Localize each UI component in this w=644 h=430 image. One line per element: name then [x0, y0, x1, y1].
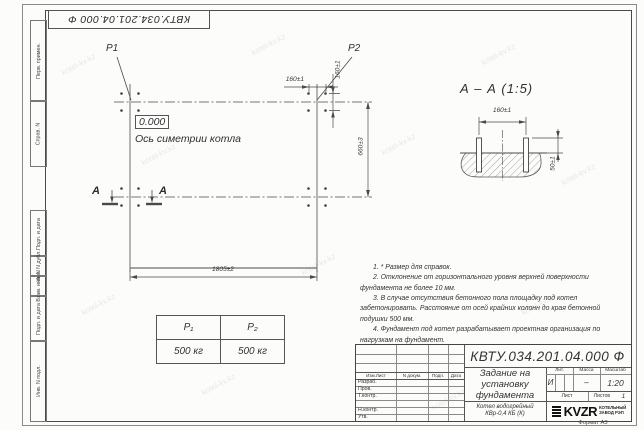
anchor-bolt-right	[524, 138, 529, 172]
notes-block: 1. * Размер для справок. 2. Отклонение о…	[360, 263, 628, 346]
row-prov: Пров.	[356, 386, 398, 393]
dim-protrusion-text: 50±1	[550, 149, 557, 179]
plan-view	[102, 57, 372, 281]
p2-leader-label: P2	[348, 43, 360, 54]
arrowhead	[556, 153, 560, 160]
document-title-line: установку	[481, 379, 528, 390]
section-view-title: А – А (1:5)	[460, 81, 533, 96]
scale-label: Масштаб	[600, 367, 631, 374]
arrowhead	[302, 85, 309, 89]
arrowhead	[519, 120, 526, 124]
note-1: 1. * Размер для справок.	[360, 263, 628, 273]
document-title: Задание на установку фундамента	[464, 367, 546, 401]
rev-header-data: Дата	[448, 372, 464, 379]
kvzr-logo-text: KVZR	[564, 404, 597, 419]
row-t-kontr: Т.контр.	[356, 393, 398, 400]
product-name-line: Котел водогрейный	[476, 404, 533, 412]
p1-leader-label: P1	[106, 43, 118, 54]
kvzr-coil-icon	[551, 405, 562, 418]
dim-sect-spacing-text: 160±1	[477, 107, 527, 114]
load-p1-header: P₁	[157, 316, 221, 340]
anchor-bolt-points	[120, 92, 327, 207]
format-label: Формат А3	[553, 420, 633, 426]
arrowhead	[310, 275, 317, 279]
kvzr-logo-caption: КОТЕЛЬНЫЙ ЗАВОД РЭП	[599, 406, 626, 416]
document-title-line: Задание на	[480, 368, 531, 379]
section-view	[460, 117, 563, 181]
title-block-designation: КВТУ.034.201.04.000 Ф	[464, 345, 631, 367]
arrowhead	[331, 87, 335, 94]
dim-bolt-spacing-h-text: 160±1	[268, 76, 304, 83]
arrowhead	[479, 120, 486, 124]
scale-value: 1:20	[600, 374, 631, 391]
row-razrab: Разраб.	[356, 379, 398, 386]
product-name: Котел водогрейный КВр-0,4 КБ (К)	[464, 401, 546, 421]
title-block: Изм.Лист N докум. Подп. Дата Разраб. Про…	[355, 344, 632, 422]
section-letter-left: А	[92, 185, 100, 197]
section-letter-right: А	[159, 185, 167, 197]
sheet-label: Лист	[546, 391, 588, 401]
row-n-kontr: Н.контр.	[356, 407, 398, 414]
load-p1-value: 500 кг	[157, 340, 221, 364]
sheets-label: Листов	[594, 393, 610, 399]
symmetry-axis-label: Ось симетрии котла	[135, 133, 241, 145]
load-p2-value: 500 кг	[221, 340, 285, 364]
arrowhead	[556, 131, 560, 138]
dim-width-text: 1805±2	[192, 266, 254, 273]
product-name-line: КВр-0,4 КБ (К)	[485, 411, 525, 419]
dim-height-text: 660±3	[358, 130, 365, 164]
load-table-value-row: 500 кг 500 кг	[157, 340, 285, 364]
anchor-bolt-left	[477, 138, 482, 172]
mass-label: Масса	[573, 367, 600, 374]
arrowhead	[150, 197, 154, 204]
document-title-line: фундамента	[476, 390, 534, 401]
dim-bolt-spacing-v-text: 160±1	[335, 54, 342, 86]
row-utv: Утв.	[356, 414, 398, 421]
drawing-sheet: { "watermark": "kotel-kv.kz", "doc_numbe…	[0, 0, 644, 430]
sheets-value: 1	[622, 393, 626, 400]
note-4: 4. Фундамент под котел разрабатывает про…	[360, 325, 628, 346]
arrowhead	[366, 102, 370, 109]
rev-header-podp: Подп.	[428, 372, 448, 379]
concrete-hatched-section	[461, 153, 541, 177]
load-table-header-row: P₁ P₂	[157, 316, 285, 340]
rev-header-n-dokum: N докум.	[396, 372, 428, 379]
lit-value: И	[546, 374, 555, 391]
load-table: P₁ P₂ 500 кг 500 кг	[156, 315, 285, 364]
rev-header-izm-list: Изм.Лист	[356, 372, 396, 379]
company-logo-cell: KVZR КОТЕЛЬНЫЙ ЗАВОД РЭП	[546, 401, 631, 421]
elevation-mark: 0.000	[135, 115, 169, 129]
load-p2-header: P₂	[221, 316, 285, 340]
arrowhead	[366, 190, 370, 197]
lit-label: Лит.	[546, 367, 573, 374]
arrowhead	[110, 197, 114, 204]
note-3: 3. В случае отсутствия бетонного пола пл…	[360, 294, 628, 325]
mass-value: –	[573, 374, 600, 391]
sheets-cell: Листов 1	[588, 391, 631, 401]
p1-leader-line	[117, 57, 131, 100]
logo-caption-line: ЗАВОД РЭП	[599, 410, 624, 415]
note-2: 2. Отклонение от горизонтального уровня …	[360, 273, 628, 294]
arrowhead	[130, 275, 137, 279]
arrowhead	[331, 111, 335, 118]
